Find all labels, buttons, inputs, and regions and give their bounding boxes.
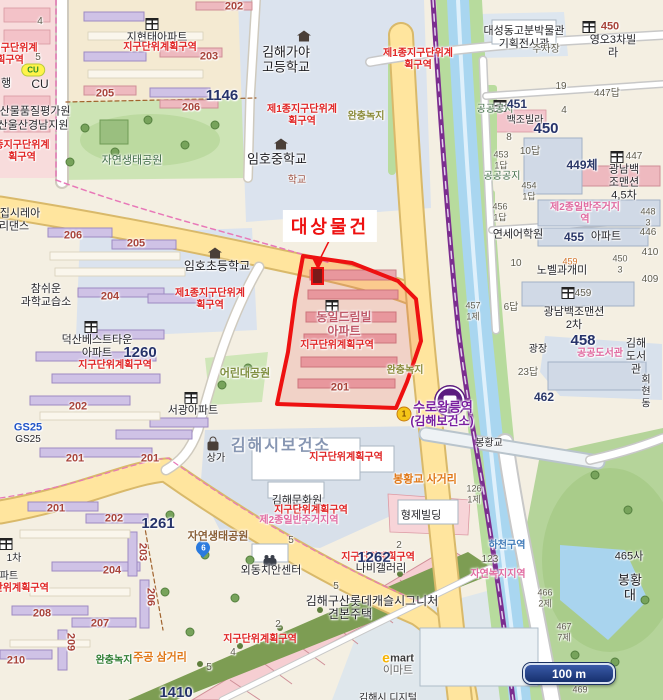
map-label: 동일드림빌 아파트 — [316, 310, 371, 338]
map-label: 206 — [64, 230, 82, 243]
map-label: 임호초등학교 — [184, 259, 250, 273]
map-label: 10 — [510, 258, 521, 270]
map-canvas[interactable]: 61CU 종지구단위계 획구역45행5CU축산물품질평가원부산울산경남지원종지구… — [0, 0, 663, 700]
map-label: 제2종일반주거지역 — [546, 202, 624, 226]
map-label: 완충녹지 — [96, 655, 133, 667]
map-label: 206 — [182, 102, 200, 115]
map-label: 지구단위계획구역 — [123, 42, 197, 54]
map-label: 봉황교 — [475, 438, 503, 450]
map-label: 나비갤러리 — [356, 563, 407, 576]
map-label: 10답 — [520, 146, 540, 158]
map-label: 자연생태공원 — [188, 531, 249, 544]
map-label: 206 — [144, 588, 157, 606]
map-label: 공공공지 — [477, 104, 514, 116]
map-label: 부산울산경남지원 — [0, 120, 68, 133]
map-label: 469 — [572, 685, 587, 696]
map-label: 203 — [136, 543, 149, 561]
map-label: (김해보건소) — [410, 414, 473, 428]
map-label: 백조빌라 — [507, 115, 544, 127]
map-label: 8 — [506, 132, 512, 144]
map-label: CU — [31, 77, 48, 91]
map-label: 201 — [66, 453, 84, 466]
map-label: 450 3 — [612, 253, 627, 274]
map-label: 이마트 — [383, 665, 413, 678]
map-label: 제1종지구단위계 획구역 — [383, 48, 453, 72]
map-label: 202 — [225, 1, 243, 14]
map-label: 김해구산롯데캐슬시그니처 — [306, 594, 438, 608]
map-label: 204 — [101, 291, 119, 304]
map-label: 457 1제 — [465, 300, 480, 321]
map-label: 지구단위계획구역 — [78, 360, 152, 372]
map-label: GS25 — [14, 422, 42, 435]
map-label: 2 — [396, 540, 402, 552]
map-label: 제1종지구단위계 획구역 — [267, 104, 337, 128]
map-label: 덕산베스트타운 아파트 — [62, 334, 133, 360]
map-label: 김해시 디지털 — [359, 693, 417, 700]
map-label: 209 — [64, 633, 77, 651]
map-label: 210 — [7, 655, 25, 668]
map-label: 207 — [91, 618, 109, 631]
map-label: 종지구단위계 획구역 — [0, 43, 38, 67]
map-label: 4 — [230, 647, 236, 659]
map-label: 지구단위계획구역 — [274, 505, 348, 517]
map-label: 수로왕릉역 — [413, 399, 473, 414]
map-label: 2 — [275, 619, 281, 631]
map-label: 지구단위계획구역 — [341, 552, 415, 564]
map-label: 김해도서관 — [623, 338, 650, 377]
map-label: 공공도서관 — [577, 348, 623, 360]
map-label: 봉황대 — [614, 573, 647, 604]
map-label: 5 — [333, 581, 339, 593]
map-label: 광남백조맨션 2차 — [544, 306, 605, 332]
map-label: 영오3차빌라 — [588, 34, 638, 60]
map-label: GS25 — [15, 434, 41, 446]
map-label: 467 7제 — [556, 621, 571, 642]
map-label: 파트 — [0, 571, 18, 583]
map-label: 454 1답 — [521, 180, 536, 201]
map-label: 5 — [35, 52, 41, 64]
map-label: 참쉬운 과학교습소 — [21, 283, 72, 309]
scale-bar: 100 m — [523, 663, 615, 684]
map-label: 203 — [200, 51, 218, 64]
map-label: 회현동 — [638, 374, 655, 409]
map-label: 450 — [533, 120, 558, 138]
map-label: 6답 — [504, 302, 519, 314]
map-label: 1410 — [159, 684, 192, 700]
map-label: 447 — [626, 151, 643, 163]
map-label: 행 — [1, 78, 11, 91]
map-label: 123 — [482, 554, 499, 566]
map-label: 학교 — [288, 175, 306, 187]
map-label: 1146 — [206, 87, 239, 105]
map-label: 450 — [601, 21, 619, 34]
map-label: 형제빌딩 — [401, 510, 441, 523]
map-label: 126 1제 — [466, 483, 481, 504]
map-label: 축산물품질평가원 — [0, 106, 70, 119]
map-label: 4 — [561, 105, 567, 117]
map-label: 5 — [9, 152, 15, 164]
map-label: 지구단위계획구역 — [0, 583, 49, 595]
map-label: 458 — [570, 332, 595, 350]
map-label: 봉황교 사거리 — [393, 474, 457, 487]
map-label: 1차 — [7, 553, 22, 565]
map-label: 광장 — [529, 344, 547, 356]
target-label: 대상물건 — [283, 210, 377, 242]
map-label: 집시레아 — [0, 208, 40, 221]
map-label: 완충녹지 — [387, 365, 424, 377]
map-label: 임호중학교 — [247, 151, 307, 166]
map-label: 466 2제 — [537, 587, 552, 608]
map-label: 제1종지구단위계 획구역 — [175, 288, 245, 312]
map-label: 자연녹지지역 — [470, 569, 525, 581]
map-label: 465사 — [615, 551, 643, 564]
map-label: 23답 — [518, 367, 538, 379]
map-label: 종지구단위계 획구역 — [0, 140, 50, 164]
map-label: 공공공지 — [484, 171, 521, 183]
map-label: 409 — [642, 274, 659, 286]
map-label: 202 — [69, 401, 87, 414]
map-label: 상가 — [207, 453, 225, 465]
map-label: 1261 — [141, 515, 174, 533]
map-label: 지구단위계획구역 — [223, 634, 297, 646]
map-label: 연세어학원 — [493, 229, 544, 242]
map-label: 201 — [331, 382, 349, 395]
map-label: 205 — [127, 238, 145, 251]
map-label: 리댄스 — [0, 221, 29, 234]
map-label: 제2종일반주거지역 — [259, 515, 338, 527]
map-label: 447답 — [594, 88, 620, 100]
map-label: 광남백조맨션 4,5차 — [605, 164, 644, 203]
map-label: 서광아파트 — [168, 405, 219, 418]
map-label: 5 — [206, 662, 212, 674]
map-label: 19 — [555, 81, 566, 93]
map-label: 김해가야 고등학교 — [262, 45, 310, 76]
map-label: 455 — [564, 230, 584, 244]
map-label: 456 1답 — [492, 201, 507, 222]
map-label: 459 — [575, 288, 592, 300]
map-label: 노벨과개미 — [537, 265, 588, 278]
map-label: 주차장 — [532, 44, 560, 56]
map-label: 아파트 — [591, 231, 621, 244]
map-label: 주공 삼거리 — [133, 652, 187, 665]
map-label: 하천구역 — [489, 540, 526, 552]
map-label: 자연생태공원 — [102, 155, 163, 168]
map-label: 448 3 — [640, 206, 655, 227]
map-label: 김해시보건소 — [231, 438, 331, 457]
map-label: 201 — [141, 453, 159, 466]
map-label: 완충녹지 — [348, 111, 385, 123]
map-label: 지구단위계획구역 — [309, 452, 383, 464]
map-label: 견본주택 — [328, 607, 372, 621]
map-label: 지구단위계획구역 — [300, 340, 374, 352]
map-label: 201 — [47, 503, 65, 516]
map-label: 410 — [642, 247, 659, 259]
map-label: e — [382, 650, 390, 667]
labels-layer: 종지구단위계 획구역45행5CU축산물품질평가원부산울산경남지원종지구단위계 획… — [0, 0, 663, 700]
map-label: 어린대공원 — [220, 368, 271, 381]
map-label: 451 — [507, 97, 527, 111]
map-label: 449체 — [566, 158, 597, 172]
map-label: 지현태아파트 — [127, 32, 188, 45]
map-label: 202 — [105, 513, 123, 526]
map-label: 대성동고분박물관 기획전시관 — [484, 25, 565, 51]
map-label: 외동치안센터 — [241, 565, 302, 578]
map-label: 446 — [640, 227, 657, 239]
map-label: 459 — [562, 257, 577, 268]
map-label: 5 — [288, 535, 294, 547]
map-label: 208 — [33, 608, 51, 621]
map-label: 1262 — [357, 549, 390, 567]
map-label: 김해문화원 — [272, 495, 323, 508]
map-label: 462 — [534, 390, 554, 404]
map-label: 205 — [96, 88, 114, 101]
map-label: mart — [390, 653, 414, 666]
map-label: 1260 — [123, 344, 156, 362]
map-label: 4 — [37, 16, 43, 28]
map-label: 453 1답 — [493, 149, 508, 170]
map-label: 204 — [103, 565, 121, 578]
